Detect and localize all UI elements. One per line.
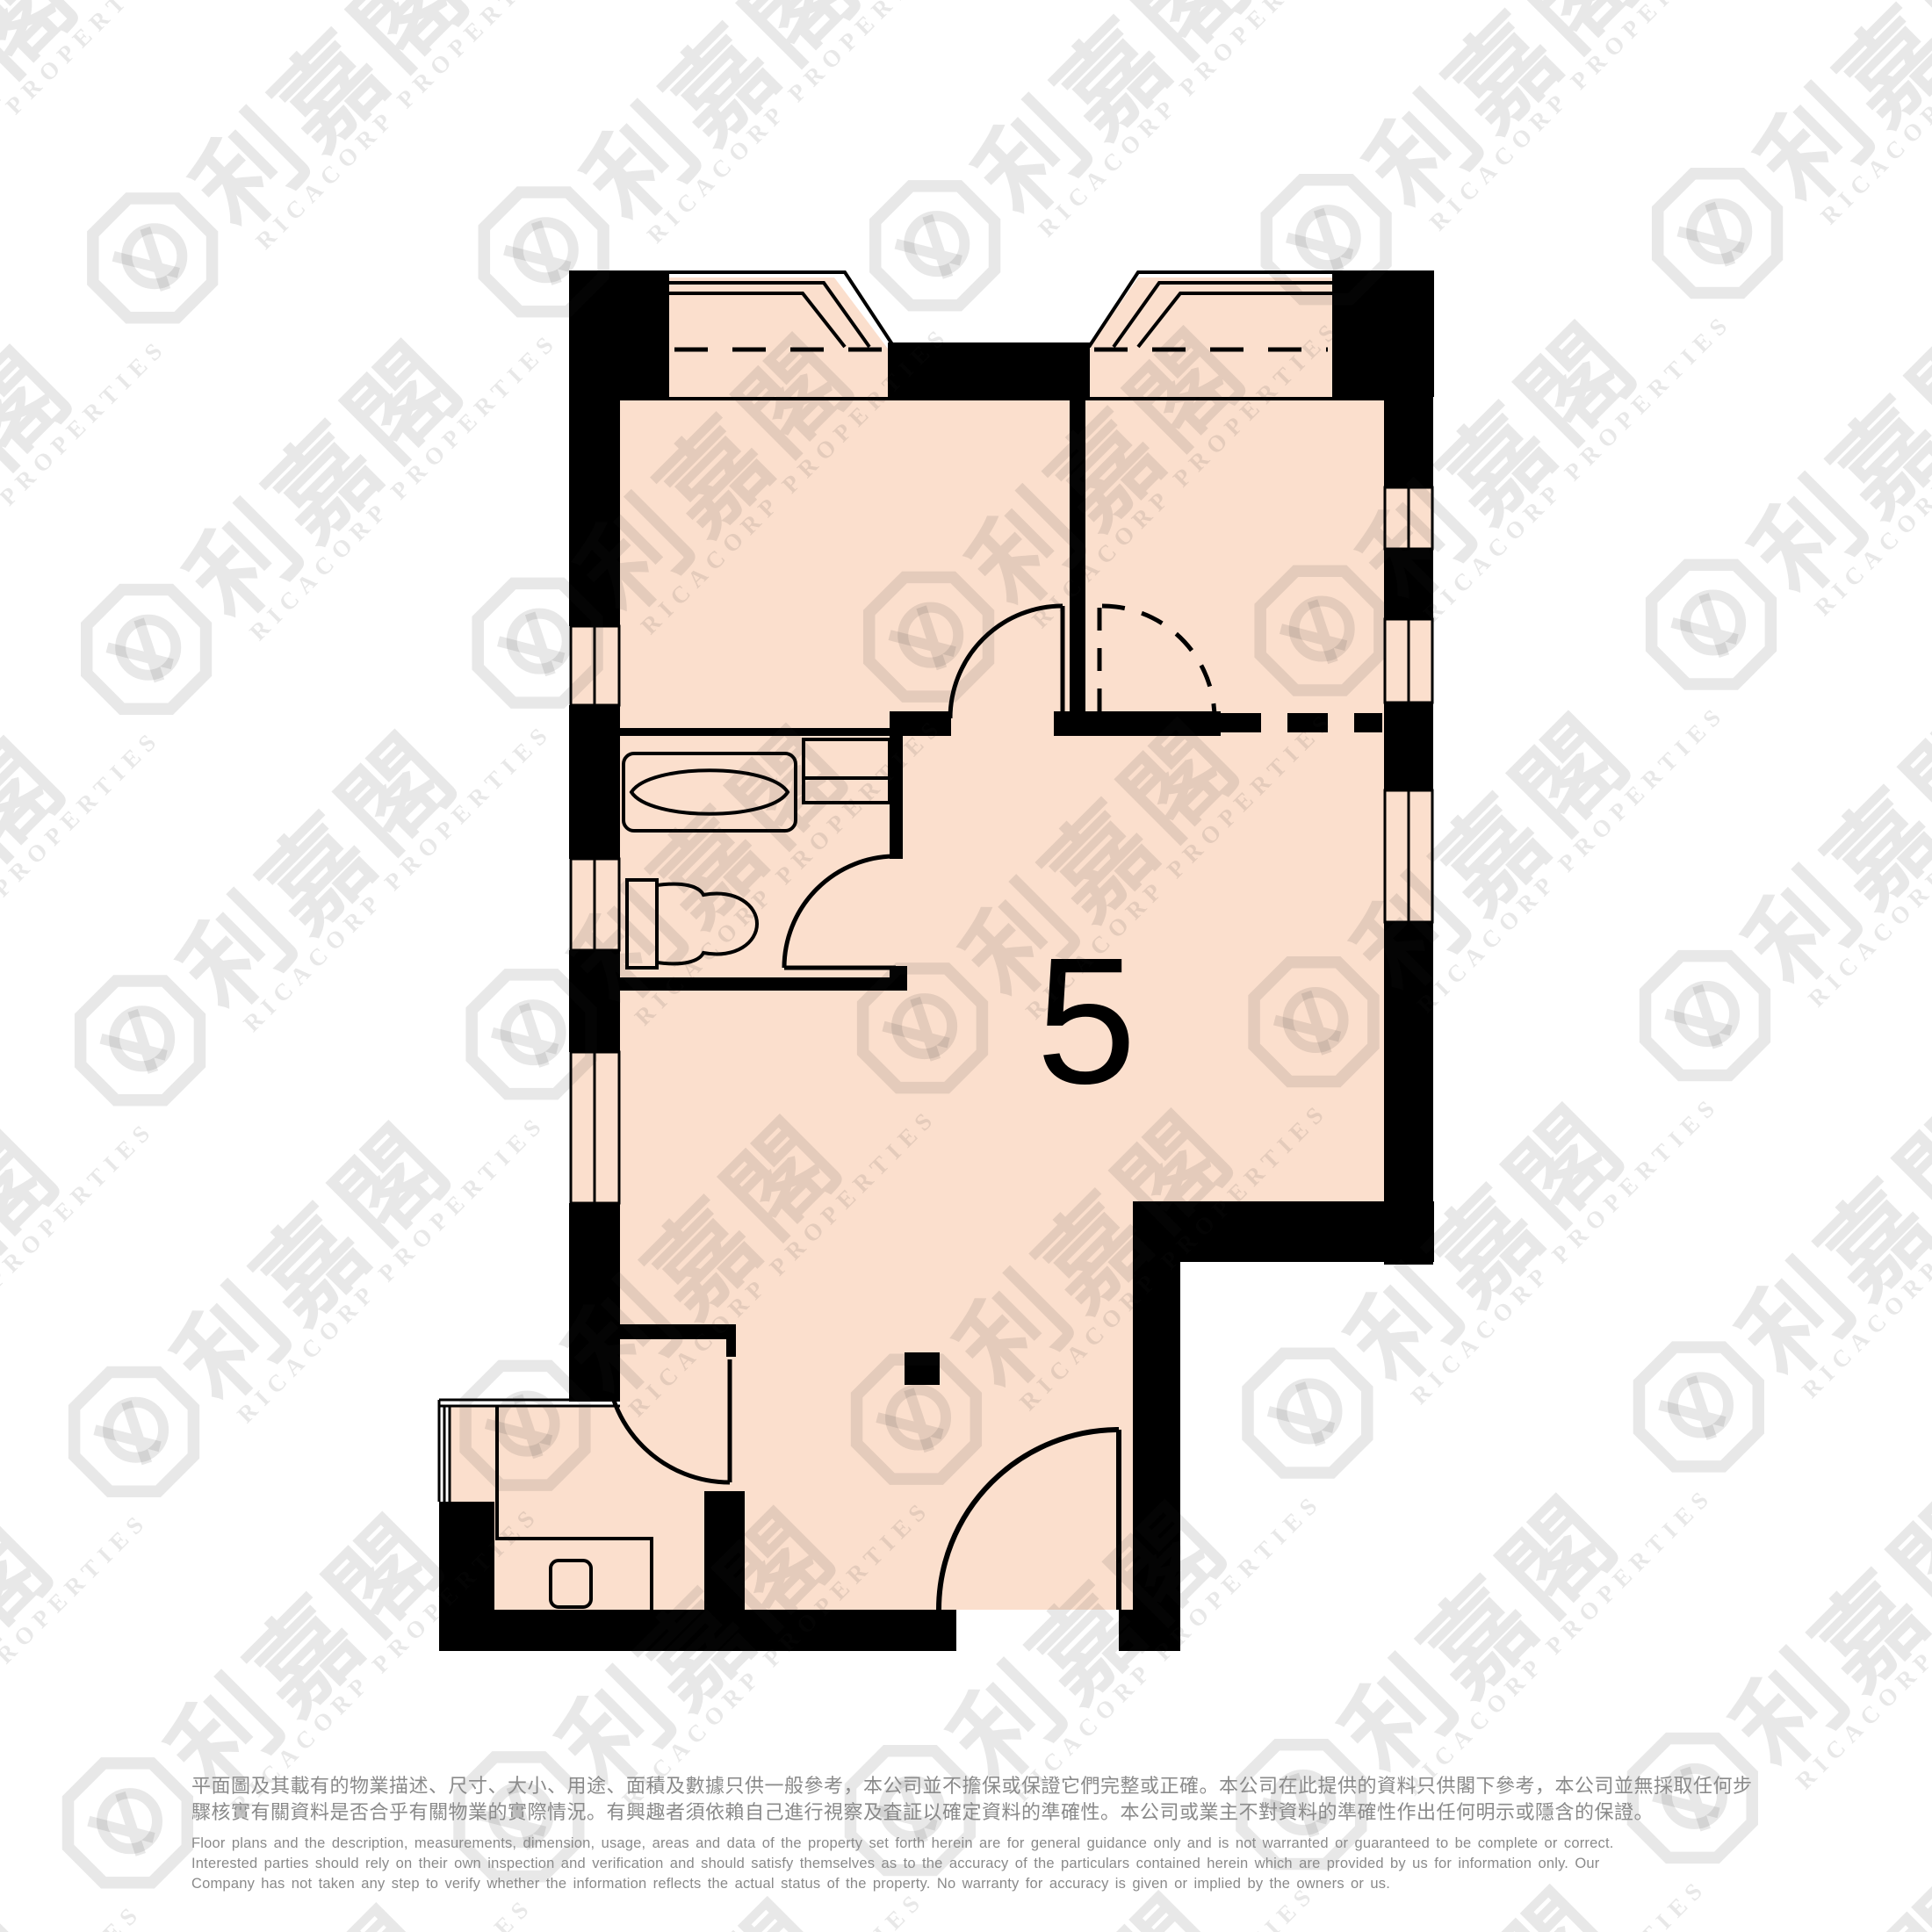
unit-number-label: 5 bbox=[1036, 920, 1136, 1121]
wall-right-1 bbox=[1384, 270, 1433, 487]
wall-bathroom-top bbox=[620, 728, 890, 736]
wall-dash-segment-3 bbox=[1354, 713, 1382, 732]
floorplan-drawing: 5 bbox=[0, 0, 1932, 1932]
wall-top-mid-block bbox=[888, 342, 1090, 397]
wall-bedroom1-south bbox=[890, 711, 951, 736]
lower-living-floor bbox=[620, 1201, 1133, 1610]
wall-bathroom-east bbox=[890, 728, 903, 859]
wall-bedroom-divider bbox=[1070, 397, 1085, 716]
wall-bottom-left-corner bbox=[439, 1502, 494, 1616]
wall-kitchen-divider bbox=[569, 1324, 736, 1339]
wall-bedroom2-south bbox=[1102, 711, 1221, 736]
floorplan-page: 5 利嘉閣 RICACORP PROPERTIES 利嘉閣 RICACORP P… bbox=[0, 0, 1932, 1932]
disclaimer-zh-line2: 驟核實有關資料是否合乎有關物業的實際情況。有興趣者須依賴自己進行視察及査証以確定… bbox=[191, 1797, 1654, 1825]
window-right-bedroom2-lower bbox=[1385, 619, 1432, 703]
wall-right-3 bbox=[1384, 703, 1433, 790]
upper-rooms-floor bbox=[620, 397, 1384, 1201]
wall-right-2 bbox=[1384, 549, 1433, 619]
window-right-bedroom2-upper bbox=[1385, 487, 1432, 549]
wall-dash-segment-2 bbox=[1287, 713, 1328, 732]
disclaimer-en-line1: Floor plans and the description, measure… bbox=[191, 1835, 1614, 1852]
window-left-living bbox=[571, 1052, 619, 1203]
wall-bottom-right bbox=[1119, 1610, 1180, 1651]
bay-window-left-floor bbox=[669, 278, 888, 397]
wall-left-1 bbox=[569, 270, 620, 626]
wall-step bbox=[1133, 1201, 1434, 1262]
disclaimer-en-line3: Company has not taken any step to verify… bbox=[191, 1876, 1390, 1892]
disclaimer-zh-line1: 平面圖及其載有的物業描述、尺寸、大小、用途、面積及數據只供一般參考，本公司並不擔… bbox=[191, 1770, 1753, 1799]
wall-kitchen-divider-notch bbox=[726, 1339, 736, 1357]
wall-kitchen-stub bbox=[704, 1491, 745, 1610]
wall-lower-right bbox=[1133, 1262, 1180, 1651]
wall-dash-segment-1 bbox=[1221, 713, 1261, 732]
window-left-bathroom bbox=[571, 859, 619, 950]
wall-bathroom-south bbox=[620, 977, 890, 991]
disclaimer-en-line2: Interested parties should rely on their … bbox=[191, 1856, 1599, 1872]
wall-left-3 bbox=[569, 950, 620, 1052]
wall-foyer-post bbox=[905, 1352, 940, 1385]
bay-window-right-floor bbox=[1089, 278, 1332, 397]
wall-left-2 bbox=[569, 705, 620, 859]
wall-bottom-left bbox=[439, 1610, 956, 1651]
window-right-living bbox=[1385, 790, 1432, 922]
window-left-bedroom1 bbox=[571, 626, 619, 705]
wall-left-4 bbox=[569, 1203, 620, 1402]
